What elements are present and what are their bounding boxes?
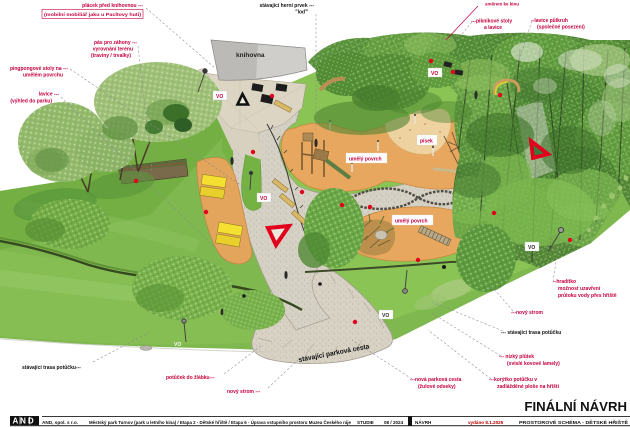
svg-text:lavice ---: lavice --- — [39, 92, 60, 98]
svg-text:"loď": "loď" — [295, 10, 308, 16]
svg-text:AND: AND — [13, 417, 36, 426]
svg-text:pás pro záhony ---: pás pro záhony --- — [94, 40, 137, 46]
svg-text:umělý povrch: umělý povrch — [395, 219, 428, 225]
svg-text:--hradítko: --hradítko — [553, 279, 576, 285]
svg-text:--- nízký plůtek: --- nízký plůtek — [499, 353, 534, 360]
svg-text:--- stávající trasa potůčku: --- stávající trasa potůčku — [501, 329, 561, 336]
svg-text:---piknikové stoly: ---piknikové stoly — [471, 19, 512, 25]
svg-text:VO: VO — [431, 71, 438, 77]
svg-text:Městský park Turnov (park u le: Městský park Turnov (park u letního kina… — [89, 419, 351, 425]
svg-text:STUDIE: STUDIE — [357, 420, 374, 425]
svg-text:písek: písek — [420, 139, 433, 145]
svg-text:VO: VO — [382, 313, 389, 319]
svg-text:--lavice půlkruh: --lavice půlkruh — [531, 17, 568, 24]
svg-text:(svislé kovové lamely): (svislé kovové lamely) — [507, 361, 560, 367]
svg-text:08 / 2024: 08 / 2024 — [384, 420, 404, 425]
svg-text:VO: VO — [174, 342, 181, 348]
svg-text:nový strom ---: nový strom --- — [227, 389, 261, 395]
svg-text:(mobilní mobiliář jaku u Paclt: (mobilní mobiliář jaku u Pacltovy huti) — [44, 12, 142, 17]
svg-text:VO: VO — [216, 94, 223, 100]
svg-text:(výhled do parku): (výhled do parku) — [10, 99, 52, 105]
svg-text:umělý povrch: umělý povrch — [349, 157, 382, 163]
svg-text:směrem ke kinu: směrem ke kinu — [485, 2, 519, 7]
svg-text:NÁVRH: NÁVRH — [415, 419, 432, 425]
svg-text:potůček do žlábku---: potůček do žlábku--- — [166, 374, 215, 381]
svg-text:VO: VO — [260, 196, 267, 202]
svg-text:vydáno 8.1.2025: vydáno 8.1.2025 — [468, 420, 504, 425]
svg-text:stávající herní prvek ---: stávající herní prvek --- — [260, 3, 315, 9]
svg-text:AND, spol. s r.o.: AND, spol. s r.o. — [42, 420, 78, 425]
svg-text:zadlážděné ploše na hřišti: zadlážděné ploše na hřišti — [497, 384, 560, 390]
svg-text:vyrovnání terénu: vyrovnání terénu — [93, 47, 133, 53]
svg-text:(traviny / trvalky): (traviny / trvalky) — [91, 53, 131, 59]
svg-text:a lavice: a lavice — [484, 25, 502, 31]
svg-text:stávající trasa potůčku---: stávající trasa potůčku--- — [22, 364, 81, 371]
svg-text:knihovna: knihovna — [236, 52, 265, 59]
svg-text:---nová parková cesta: ---nová parková cesta — [410, 377, 462, 383]
svg-text:možnost uzavření: možnost uzavření — [558, 286, 601, 292]
svg-text:---korýtko potůčku v: ---korýtko potůčku v — [489, 376, 537, 383]
svg-text:plácek před knihovnou ---: plácek před knihovnou --- — [82, 3, 143, 9]
svg-text:PROSTOROVÉ SCHÉMA - DĚTSKÉ HŘI: PROSTOROVÉ SCHÉMA - DĚTSKÉ HŘIŠTĚ — [519, 418, 628, 425]
svg-text:VO: VO — [528, 245, 535, 251]
svg-text:umělém povrchu: umělém povrchu — [23, 73, 63, 79]
svg-text:FINÁLNÍ NÁVRH: FINÁLNÍ NÁVRH — [524, 399, 627, 414]
svg-text:pingpongové stoly na ---: pingpongové stoly na --- — [10, 66, 68, 72]
svg-text:průtoku vody přes hřiště: průtoku vody přes hřiště — [558, 292, 617, 299]
svg-text:(společné posezení): (společné posezení) — [537, 25, 585, 31]
svg-text:(žulové odseky): (žulové odseky) — [418, 384, 456, 390]
svg-text:---nový strom: ---nový strom — [511, 310, 544, 316]
